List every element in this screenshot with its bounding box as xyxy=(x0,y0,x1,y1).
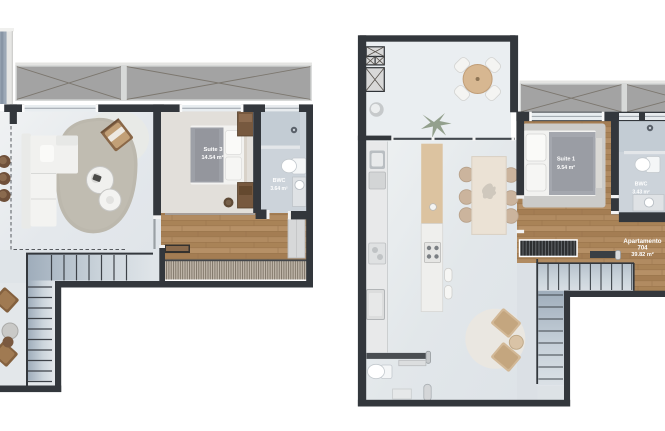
svg-text:BWC: BWC xyxy=(635,182,648,188)
svg-text:BWC: BWC xyxy=(273,178,286,184)
svg-text:14.54 m²: 14.54 m² xyxy=(201,154,223,161)
svg-text:Apartamento: Apartamento xyxy=(623,238,661,245)
svg-text:9.54 m²: 9.54 m² xyxy=(557,165,575,171)
svg-text:704: 704 xyxy=(637,245,648,251)
svg-text:3.43 m²: 3.43 m² xyxy=(632,190,650,196)
svg-text:Suite 3: Suite 3 xyxy=(203,147,223,153)
svg-text:3.64 m²: 3.64 m² xyxy=(270,186,288,192)
svg-text:Suite 1: Suite 1 xyxy=(557,157,575,163)
svg-text:39.82 m²: 39.82 m² xyxy=(631,251,654,258)
